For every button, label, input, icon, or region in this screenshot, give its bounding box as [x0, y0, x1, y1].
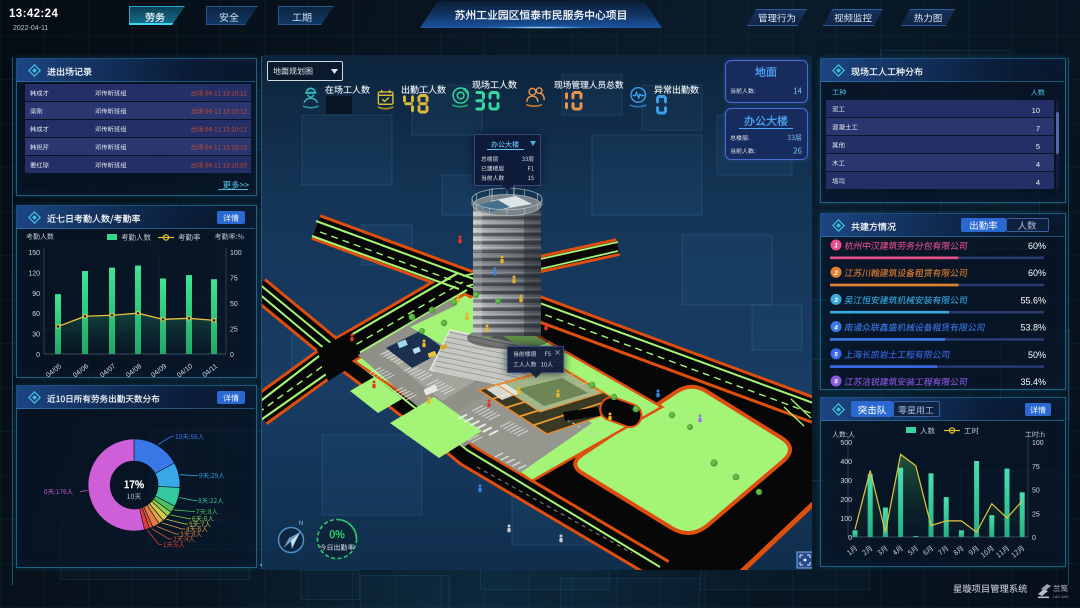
svg-text:1: 1	[834, 243, 838, 250]
svg-text:3: 3	[834, 297, 838, 304]
svg-text:4: 4	[833, 324, 838, 331]
svg-text:5: 5	[834, 352, 838, 359]
svg-text:2: 2	[833, 270, 838, 277]
svg-text:6: 6	[834, 379, 838, 386]
